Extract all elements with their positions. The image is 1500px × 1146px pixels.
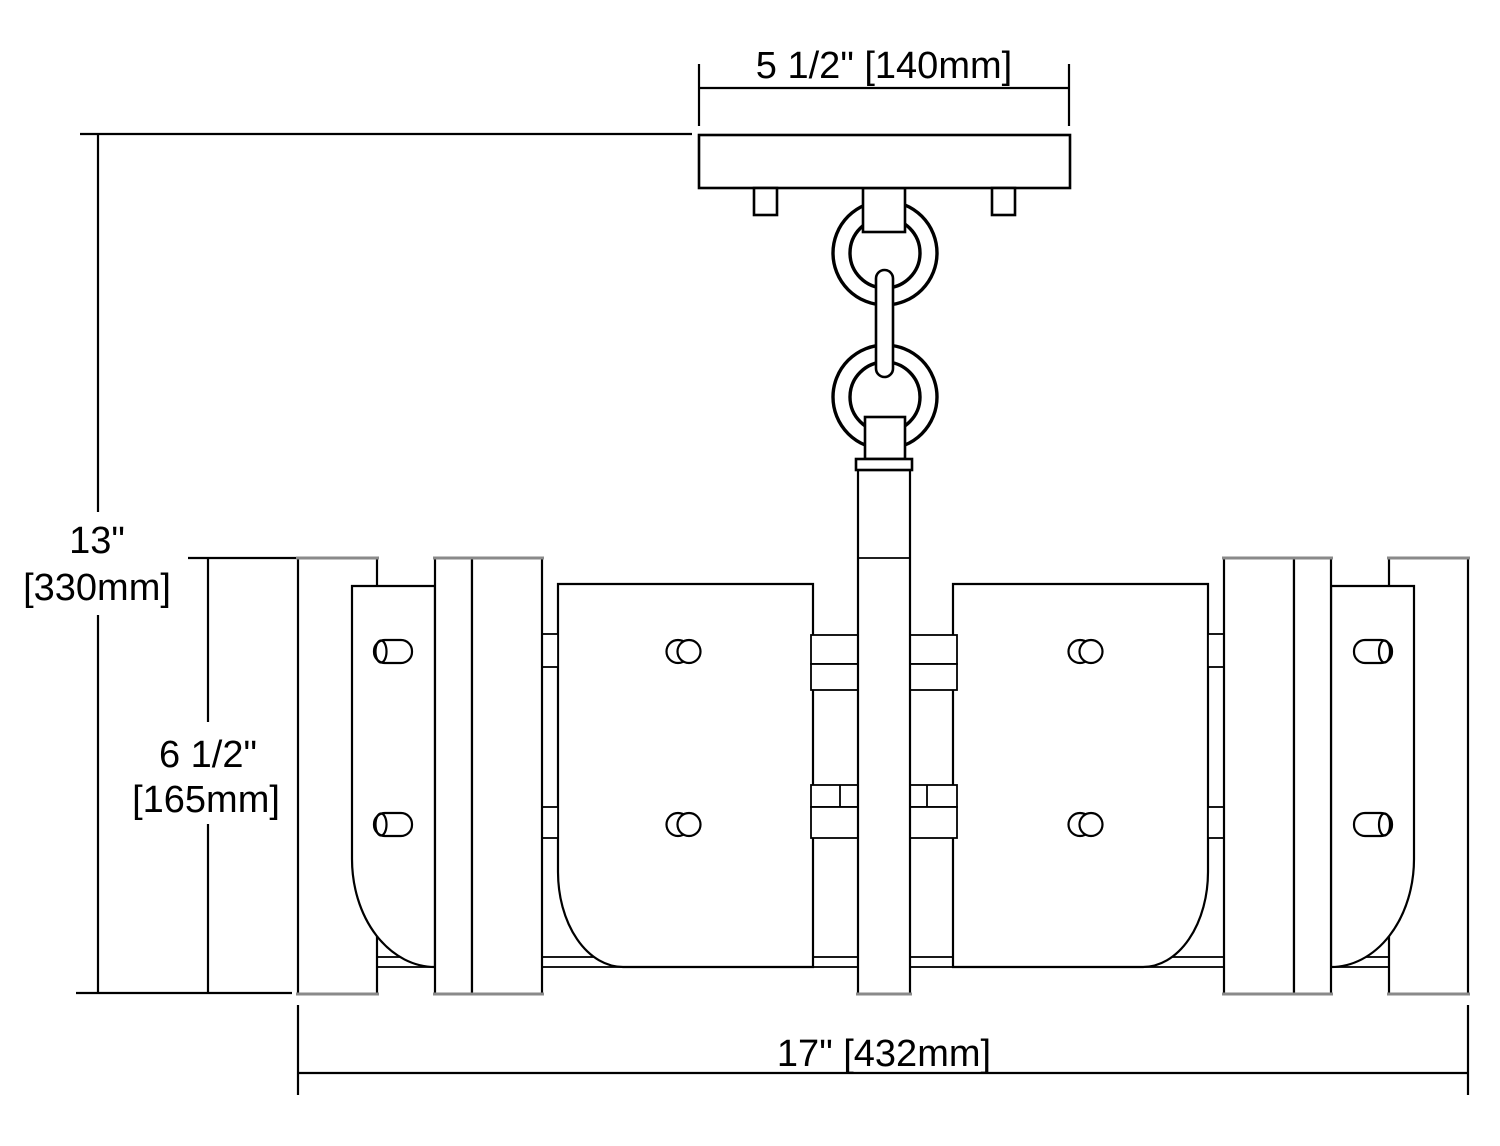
peg-outer-right-top bbox=[1354, 640, 1392, 663]
bracket-pair-left bbox=[542, 634, 558, 838]
dimension-body-height: 6 1/2" [165mm] bbox=[132, 558, 296, 993]
overall-height-value: 13" bbox=[69, 520, 125, 562]
frame-bar-pair-left bbox=[433, 558, 544, 994]
frame-bar-pair-right bbox=[1222, 558, 1333, 994]
peg-center-left-bottom bbox=[667, 813, 701, 836]
peg-center-right-top bbox=[1069, 640, 1103, 663]
chain-hub-top bbox=[863, 188, 905, 232]
overall-height-metric: [330mm] bbox=[23, 567, 171, 609]
overall-width-label: 17" [432mm] bbox=[777, 1033, 991, 1075]
canopy-mount-tab-left bbox=[754, 188, 777, 215]
peg-outer-left-top bbox=[374, 640, 412, 663]
chain-link bbox=[876, 270, 893, 377]
body-height-metric: [165mm] bbox=[132, 779, 280, 821]
dimension-overall-width: 17" [432mm] bbox=[298, 1005, 1468, 1095]
peg-outer-right-bottom bbox=[1354, 813, 1392, 836]
chain-hub-bottom bbox=[865, 417, 905, 459]
peg-center-left-top bbox=[667, 640, 701, 663]
peg-center-right-bottom bbox=[1069, 813, 1103, 836]
bracket-pair-right bbox=[1208, 634, 1225, 838]
light-fixture-dimension-drawing: 5 1/2" [140mm] 13" [330mm] 6 1/2" [165mm… bbox=[0, 0, 1500, 1146]
body-height-value: 6 1/2" bbox=[159, 734, 257, 776]
bracket-stem-left bbox=[811, 635, 859, 838]
canopy-mount-tab-right bbox=[992, 188, 1015, 215]
bracket-stem-right bbox=[909, 635, 957, 838]
stem-collar bbox=[856, 459, 912, 470]
dimension-canopy-width: 5 1/2" [140mm] bbox=[699, 45, 1069, 126]
technical-drawing-page: 5 1/2" [140mm] 13" [330mm] 6 1/2" [165mm… bbox=[0, 0, 1500, 1146]
peg-outer-left-bottom bbox=[374, 813, 412, 836]
ceiling-canopy bbox=[699, 135, 1070, 188]
center-stem bbox=[856, 470, 912, 994]
canopy-width-label: 5 1/2" [140mm] bbox=[756, 45, 1012, 87]
